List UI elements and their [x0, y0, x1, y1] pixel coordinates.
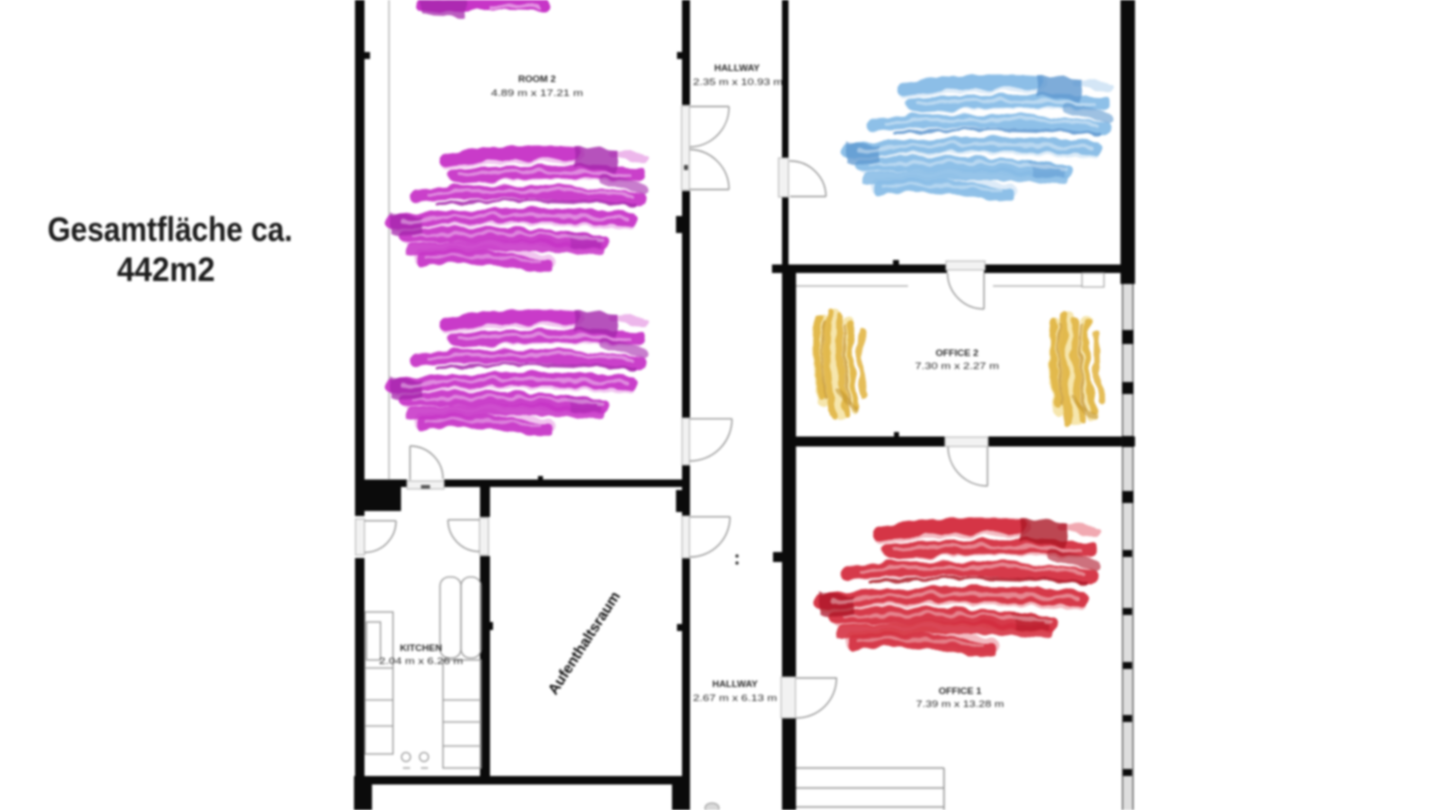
svg-text:HALLWAY: HALLWAY [714, 63, 760, 74]
svg-text:7.30 m x 2.27 m: 7.30 m x 2.27 m [915, 361, 999, 372]
svg-text:442m2: 442m2 [117, 251, 215, 289]
svg-text:OFFICE 2: OFFICE 2 [936, 348, 979, 359]
svg-text:ROOM 2: ROOM 2 [518, 74, 555, 85]
svg-text:4.89 m x 17.21 m: 4.89 m x 17.21 m [491, 88, 583, 99]
svg-text:7.39 m x 13.28 m: 7.39 m x 13.28 m [916, 699, 1004, 710]
svg-text:2.35 m x 10.93 m: 2.35 m x 10.93 m [693, 77, 783, 88]
svg-text:2.04 m x 6.26 m: 2.04 m x 6.26 m [379, 656, 463, 667]
svg-text:OFFICE 1: OFFICE 1 [939, 686, 982, 697]
svg-text:KITCHEN: KITCHEN [400, 643, 442, 654]
svg-text:2.67 m x 6.13 m: 2.67 m x 6.13 m [693, 693, 777, 704]
svg-text:HALLWAY: HALLWAY [712, 679, 758, 690]
svg-text:Gesamtfläche ca.: Gesamtfläche ca. [48, 211, 293, 249]
